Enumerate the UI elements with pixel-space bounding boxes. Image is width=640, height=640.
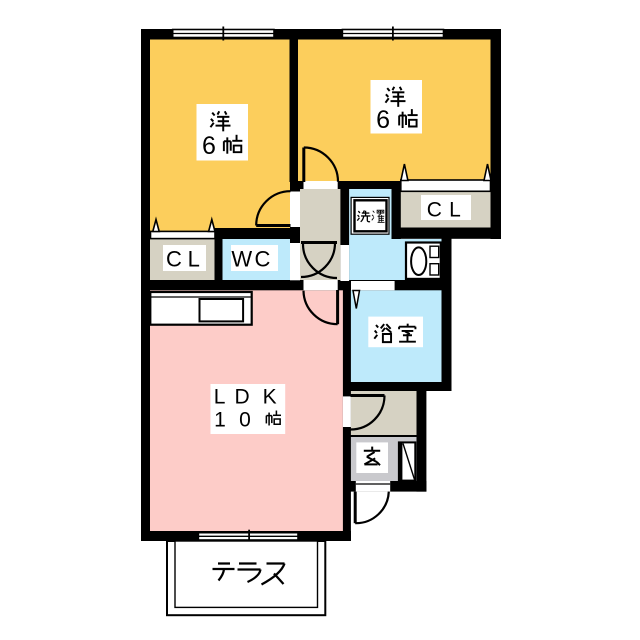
svg-text:1: 1: [214, 409, 226, 432]
svg-text:6: 6: [376, 106, 390, 134]
svg-text:W: W: [231, 247, 252, 272]
svg-text:C: C: [427, 199, 442, 222]
svg-text:0: 0: [239, 409, 251, 432]
svg-text:D: D: [235, 386, 250, 409]
svg-text:6: 6: [202, 132, 216, 160]
svg-text:L: L: [188, 247, 200, 272]
svg-text:C: C: [255, 247, 271, 272]
svg-text:K: K: [263, 386, 277, 409]
svg-text:C: C: [166, 247, 182, 272]
svg-text:L: L: [449, 199, 461, 222]
svg-text:L: L: [214, 386, 226, 409]
